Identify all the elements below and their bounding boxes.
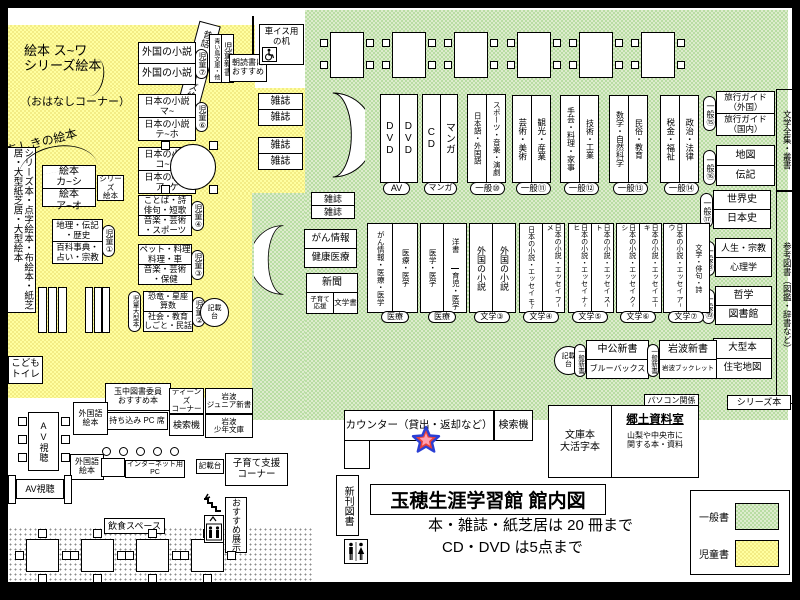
newspaper-sub-row: 子育て応援文学書: [307, 292, 357, 313]
label-text: 日本の小説・エッセイ モ~: [527, 226, 535, 309]
label-text: ・保健: [152, 275, 178, 285]
children-1-badge: 児童①: [102, 225, 115, 257]
label-text: 一般⑭: [669, 184, 695, 194]
label-text: 大活字本: [560, 442, 600, 453]
label-text: 日本の小説・エッセイ ス~ト: [594, 224, 610, 312]
local-materials-cell: 郷土資料室山梨や中央市に関する本・資料: [611, 406, 698, 477]
shelf-row: 日本の小説マ~: [139, 95, 195, 117]
internet-pc-desk: インターネット用PC: [125, 460, 185, 478]
box-text: ティーンズコーナー: [170, 388, 203, 413]
label-text: 文学全集・叢書: [782, 110, 792, 170]
label-text: （国内）: [728, 125, 762, 135]
shelf-cell: 洋書: [451, 224, 459, 268]
curved-shelf: [321, 90, 365, 180]
label-text: 児童大型本: [131, 295, 138, 328]
label-text: 子育て: [310, 296, 330, 303]
bookshelf: [94, 287, 102, 333]
magazine-rack: 雑誌雑誌: [311, 192, 355, 219]
shelf-cell: 育児・医学: [451, 268, 459, 313]
label-text: DVD: [384, 121, 395, 157]
shelf-column: 政治・法律: [679, 96, 698, 182]
chair: [209, 141, 218, 150]
legend-children-swatch: [735, 540, 779, 567]
curved-shelf: [254, 224, 296, 296]
children-large-books-badge: 児童大型本: [128, 291, 141, 332]
japanese-novels-essays-shelf: 日本の小説・エッセイ モ~日本の小説・エッセイ フ~メ: [519, 223, 565, 313]
literature-3-badge: 文学③: [474, 311, 510, 323]
shelf-column: 日本の小説・エッセイ エ~キ: [639, 224, 662, 312]
label-text: 芸術・美術: [517, 118, 527, 161]
wheelchair-desk: 車イス用の机: [259, 24, 304, 65]
medical-badge: 医療: [428, 311, 456, 323]
label-text: 絵本: [98, 192, 123, 200]
manga-badge: マンガ: [424, 182, 457, 195]
crafts-technology-shelf: 手芸・料理・家事技術・工業: [560, 95, 599, 183]
label-text: 絵本: [79, 419, 103, 428]
lending-counter-leg: [344, 441, 370, 469]
literature-books-cell: 文学書: [333, 293, 357, 313]
label-text: しごと・民話: [144, 322, 192, 331]
local-materials-title: 郷土資料室: [612, 414, 698, 427]
chair: [382, 39, 390, 47]
page-title: 玉穂生涯学習館 館内図: [370, 484, 606, 515]
bookshelf: [102, 287, 110, 333]
label-text: の机: [260, 37, 303, 47]
chair: [428, 39, 436, 47]
label-text: 文学⑤: [578, 313, 601, 322]
chair: [125, 551, 134, 560]
magazine-rack: 雑誌雑誌: [258, 137, 303, 170]
chair: [569, 61, 577, 69]
label-text: 医療: [387, 313, 403, 322]
reading-table: [330, 32, 364, 78]
box-text: 記載台: [199, 462, 222, 470]
label-text: 健康医療: [311, 253, 349, 264]
shelf-column: 日本の小説・エッセイ ナ~ヒ: [569, 224, 591, 312]
life-religion-psychology-shelf: 人生・宗教心理学: [715, 238, 772, 277]
label-text: 子育て支援: [233, 459, 281, 470]
box-text: シリーズ絵本: [98, 175, 123, 200]
shelf-row: 人生・宗教: [716, 239, 771, 257]
chair: [148, 529, 157, 538]
shelf-column: 日本の小説・エッセイ フ~メ: [542, 224, 565, 312]
label-text: AV視聴: [38, 421, 48, 463]
box-text: 岩波少年文庫: [214, 418, 244, 435]
general-12-badge: 一般⑫: [564, 182, 599, 195]
label-text: 記載: [208, 305, 222, 313]
medical-western-childcare-shelf: 医学・医学洋書育児・医学: [420, 223, 467, 313]
series-books-badge: シリーズ本: [727, 395, 791, 410]
label-text: おすすめ展示: [231, 498, 241, 552]
label-text: カ~シ: [56, 177, 82, 188]
shelf-row: 岩波新書: [660, 341, 716, 359]
label-text: 雑誌: [271, 156, 291, 167]
children-6-badge: 児童⑥: [195, 102, 208, 132]
literature-5-badge: 文学⑤: [572, 311, 608, 323]
shelf-row: 外国の小説: [139, 43, 195, 63]
label-text: 岩波ブックレット: [662, 365, 714, 372]
label-text: 一般新書: [649, 348, 656, 374]
medical-cancer-info-shelf: がん情報・医療・医学医療・医学: [367, 223, 418, 313]
label-text: 文学④: [529, 313, 552, 322]
japanese-novels-poetry-shelf: 日本の小説・エッセイ ア~ウ文学・俳句・詩: [663, 223, 710, 313]
shelf-column: 医療・医学: [392, 224, 417, 312]
label-text: 文学⑦: [674, 313, 697, 322]
stairs-icon: [199, 491, 225, 516]
shelf-row: 旅行ガイド（国内）: [717, 113, 774, 135]
shelf-row: 日本史: [714, 209, 770, 228]
shelf-row: 地図: [717, 146, 774, 165]
box-text: こどもトイレ: [11, 359, 40, 380]
chair: [507, 39, 515, 47]
bookshelf: [58, 287, 67, 333]
children-4-badge: 児童④: [191, 201, 204, 231]
shelf-row: 中公新書: [587, 341, 648, 359]
label-text: 俳句・短歌: [144, 206, 187, 216]
childcare-support-corner: 子育て支援コーナー: [225, 453, 288, 486]
box-text: 玉中図書委員おすすめ本: [114, 388, 162, 406]
label-text: 心理学: [730, 262, 757, 272]
chair: [38, 529, 47, 538]
chair: [320, 39, 328, 47]
label-text: 新刊図書: [342, 486, 353, 526]
label-text: 日本の小説・エッセイ ナ~ヒ: [572, 224, 588, 312]
shelf-column: 参考図書（図鑑・辞書など）: [777, 192, 796, 403]
shelf-column: DVD: [399, 95, 418, 182]
label-text: 児童③: [193, 253, 202, 278]
general-11-badge: 一般⑪: [516, 182, 551, 195]
chair: [61, 453, 70, 462]
japanese-novels-essays-shelf: 日本の小説・エッセイ ナ~ヒ日本の小説・エッセイ ス~ト: [568, 223, 614, 313]
shelf-column: 日本語・外国語: [468, 95, 486, 182]
chair: [61, 417, 70, 426]
av-badge: AV: [383, 182, 410, 195]
box-text: 持ち込み PC 席: [109, 417, 165, 426]
box-text: 子育て支援コーナー: [233, 459, 281, 480]
label-text: シリーズ本: [737, 397, 782, 407]
label-text: 一般⑩: [475, 184, 500, 194]
label-text: 税金・福祉: [665, 118, 675, 161]
legend-general-label: 一般書: [699, 509, 729, 524]
cancer-info-health-shelf: がん情報健康医療: [304, 229, 357, 268]
av-viewing-booth: AV視聴: [16, 479, 64, 499]
label-text: 日本の小説: [144, 119, 189, 129]
chair: [70, 551, 79, 560]
label-text: 算数: [160, 302, 176, 311]
label-text: トイレ: [11, 370, 40, 381]
art-tourism-shelf: 芸術・美術観光・産業: [512, 95, 551, 183]
iwanami-junior-paperbacks-shelf: 岩波ジュニア新書: [205, 388, 253, 414]
label-text: 占い・宗教: [56, 253, 99, 263]
label-text: 外国の小説: [499, 246, 509, 291]
foreign-language-picture-books-shelf: 外国語絵本: [70, 454, 104, 480]
general-14-badge: 一般⑭: [664, 182, 699, 195]
language-poetry-shelf: ことば・詩俳句・短歌音楽・芸術・スポーツ: [138, 195, 192, 236]
label-text: 文庫本: [565, 430, 595, 441]
shelf-row: 伝記: [717, 165, 774, 185]
label-text: AV: [391, 183, 402, 193]
label-text: 日本の小説: [144, 96, 189, 106]
label-text: 図書館: [729, 309, 759, 320]
reading-table: [454, 32, 488, 78]
label-text: 日本の小説・エッセイ エ~キ: [642, 224, 658, 312]
box-text: AV視聴: [25, 484, 54, 494]
bookshelf: [85, 287, 93, 333]
children-3-badge: 児童③: [191, 250, 204, 280]
chair: [615, 39, 623, 47]
teens-corner: ティーンズコーナー: [169, 388, 204, 414]
large-books-housing-maps-shelf: 大型本住宅地図: [713, 338, 772, 379]
children-7-badge: 児童⑦: [195, 49, 208, 79]
restroom-icon: [344, 539, 368, 564]
label-text: AV視聴: [25, 484, 54, 494]
shelf-column: 日本の小説・エッセイ ス~ト: [591, 224, 614, 312]
shelf-column: 数学・自然科学: [610, 96, 628, 182]
chair: [180, 551, 189, 560]
label-text: 一般⑪: [521, 184, 547, 194]
shelf-row: 雑誌: [259, 109, 302, 125]
label-text: 日本の小説・エッセイ ア~ウ: [667, 224, 683, 312]
label-text: 児童⑥: [197, 105, 206, 130]
star-marker-icon: [411, 425, 441, 455]
chair: [444, 61, 452, 69]
label-text: 検索機: [499, 420, 529, 431]
label-text: 児童⑦: [197, 52, 206, 77]
label-text: 文学・俳句・詩: [694, 244, 702, 293]
shelf-row: 岩波ブックレット: [660, 359, 716, 378]
shelf-column: 医学・医学: [421, 224, 443, 312]
magazine-rack: 雑誌雑誌: [258, 93, 303, 126]
general-15-badge: 一般⑮: [703, 96, 716, 131]
label-text: （外国）: [728, 103, 762, 113]
shelf-row: 雑誌: [312, 205, 354, 218]
shelf-row: 社会・教育しごと・民話: [144, 311, 192, 331]
bookshelf: [48, 287, 57, 333]
label-text: 雑誌: [324, 207, 342, 217]
label-text: 技術・工業: [585, 119, 594, 159]
shelf-row: 百科事典・占い・宗教: [53, 241, 102, 263]
shelf-row: 心理学: [716, 257, 771, 276]
label-text: 文学書: [334, 299, 357, 307]
shelf-column: スポーツ・音楽・演劇: [486, 95, 505, 182]
label-text: 応援: [314, 303, 327, 310]
legend-general-swatch: [735, 503, 779, 530]
shelf-row: 雑誌: [259, 153, 302, 169]
label-text: 文学③: [480, 313, 503, 322]
world-japan-history-shelf: 世界史日本史: [713, 190, 771, 229]
label-text: 文学⑥: [626, 313, 649, 322]
label-text: 一般⑰: [702, 199, 711, 223]
kids-toilet-label: こどもトイレ: [8, 356, 43, 384]
label-text: DVD: [403, 121, 414, 157]
label-text: 一般⑬: [618, 184, 644, 194]
japanese-novels-essays-shelf: 日本の小説・エッセイ ク~シ日本の小説・エッセイ エ~キ: [616, 223, 662, 313]
label-text: 日本史: [727, 213, 757, 224]
label-text: がん情報・医療・医学: [376, 231, 384, 306]
shelf-row: 雑誌: [312, 193, 354, 205]
reading-table: [579, 32, 613, 78]
label-text: おすすめ本: [114, 397, 162, 406]
dvd-shelf: DVDDVD: [380, 94, 418, 183]
label-text: 児童④: [193, 204, 202, 229]
shelf-column: 新刊図書: [337, 476, 358, 535]
box-text: 岩波ジュニア新書: [207, 393, 251, 410]
chair: [366, 39, 374, 47]
label-text: 料理・車: [148, 255, 182, 265]
shelf-row: 旅行ガイド（外国）: [717, 92, 774, 113]
reading-table: [517, 32, 551, 78]
round-table: [170, 144, 216, 190]
shelf-column: 日本の小説・エッセイ モ~: [520, 224, 542, 312]
label-text: 哲学: [734, 290, 754, 301]
shelf-column: がん情報・医療・医学: [368, 224, 392, 312]
label-text: 洋書: [451, 238, 459, 253]
shelf-row: 雑誌: [259, 138, 302, 153]
label-text: テ~ホ: [155, 129, 178, 139]
shelf-row: 音楽・芸術・スポーツ: [139, 215, 191, 235]
chair: [490, 39, 498, 47]
stool: [102, 447, 111, 456]
shelf-row: 恐竜・星座算数: [144, 292, 192, 311]
label-text: CD: [426, 127, 437, 151]
chair: [320, 61, 328, 69]
shelf-row: 外国の小説: [139, 63, 195, 84]
chair: [631, 61, 639, 69]
series-picture-books-shelf: シリーズ絵本: [97, 175, 124, 201]
shelf-column: 観光・産業: [531, 96, 550, 182]
childcare-support-cell: 子育て応援: [307, 293, 333, 313]
chair: [18, 435, 27, 444]
label-text: 台: [565, 361, 572, 369]
label-text: スポーツ・音楽・演劇: [492, 101, 500, 176]
shelf-column: 民俗・教育: [628, 96, 647, 182]
shelf-column: 外国の小説: [470, 224, 492, 312]
reading-table: [392, 32, 426, 78]
label-text: 日本語・外国語: [473, 112, 481, 165]
label-text: 少年文庫: [214, 426, 244, 434]
legend-children-label: 児童書: [699, 546, 729, 561]
shelf-row: 雑誌: [259, 94, 302, 109]
chair: [227, 551, 236, 560]
chair: [209, 185, 218, 194]
chuko-paperbacks-shelf: 中公新書ブルーバックス: [586, 340, 649, 379]
shelf-row: ことば・詩俳句・短歌: [139, 196, 191, 215]
label-text: 雑誌: [271, 140, 291, 151]
label-text: ・歴史: [65, 231, 91, 241]
label-text: コーナー: [170, 405, 203, 413]
philosophy-library-shelf: 哲学図書館: [715, 286, 772, 325]
school-library-recommended-shelf: 玉中図書委員おすすめ本: [105, 383, 171, 411]
shelf-row: 日本の小説テ~ホ: [139, 117, 195, 140]
box-text: 検索機: [173, 420, 200, 430]
shelf-row: ペット・料理料理・車: [139, 245, 191, 264]
travel-guide-shelf: 旅行ガイド（外国）旅行ガイド（国内）: [716, 91, 775, 136]
box-text: 検索機: [499, 420, 529, 431]
shelf-row: がん情報: [305, 230, 356, 248]
box-text: 外国語絵本: [79, 410, 103, 428]
chair: [428, 61, 436, 69]
label-text: 数学・自然科学: [615, 111, 624, 167]
shelf-column: おすすめ展示: [226, 498, 246, 552]
bookshelf: [38, 287, 47, 333]
shelf-column: AV視聴: [29, 413, 58, 470]
chair: [18, 453, 27, 462]
iwanami-juvenile-paperbacks-shelf: 岩波少年文庫: [205, 414, 253, 438]
label-text: ティーンズ: [170, 388, 203, 405]
label-text: 外国の小説: [142, 47, 192, 58]
shelf-column: DVD: [381, 95, 399, 182]
math-science-folklore-shelf: 数学・自然科学民俗・教育: [609, 95, 648, 183]
label-text: 伝記: [736, 170, 756, 181]
chair: [203, 574, 212, 583]
label-text: 育児・医学: [451, 272, 459, 310]
shelf-row: 地理・伝記・歴史: [53, 220, 102, 241]
stool: [136, 447, 145, 456]
pets-cooking-shelf: ペット・料理料理・車音楽・芸術・保健: [138, 244, 192, 285]
shelf-column: 文学全集・叢書: [777, 90, 796, 190]
label-text: 記載台: [199, 462, 222, 470]
label-text: 政治・法律: [684, 118, 694, 161]
lending-note-books: 本・雑誌・紙芝居は 20 冊まで: [428, 517, 668, 536]
label-text: 外国の小説: [142, 68, 192, 79]
foreign-language-picture-books-shelf: 外国語絵本: [73, 402, 108, 435]
dining-table: [136, 539, 169, 572]
box-text: インターネット用PC: [126, 461, 184, 477]
shelf-row: 音楽・芸術・保健: [139, 264, 191, 284]
recommended-display-shelf: おすすめ展示: [225, 497, 247, 553]
shelf-row: 住宅地図: [714, 358, 771, 378]
paperback-large-print-cell: 文庫本大活字本: [549, 406, 611, 477]
shelf-column: 日本の小説・エッセイ ア~ウ: [664, 224, 686, 312]
chair: [15, 551, 24, 560]
label-text: マンガ: [429, 184, 453, 193]
label-text: 絵本: [59, 189, 79, 200]
literature-6-badge: 文学⑥: [620, 311, 656, 323]
shelf-column: CD: [423, 95, 440, 182]
label-text: 医療: [434, 313, 450, 322]
byo-pc-seat-label: 持ち込み PC 席: [106, 412, 168, 430]
chair: [490, 61, 498, 69]
label-text: 雑誌: [271, 96, 291, 107]
stool: [170, 447, 179, 456]
label-text: 検索機: [173, 420, 200, 430]
label-text: コーナー: [233, 470, 281, 481]
label-text: 世界史: [727, 194, 757, 205]
label-text: ・スポーツ: [144, 226, 186, 236]
chair: [444, 39, 452, 47]
maps-biography-shelf: 地図伝記: [716, 145, 775, 186]
label-text: 一般⑯: [705, 156, 714, 180]
chair: [93, 574, 102, 583]
label-text: 雑誌: [271, 112, 291, 123]
tax-politics-shelf: 税金・福祉政治・法律: [660, 95, 699, 183]
label-text: 手芸・料理・家事: [566, 107, 575, 171]
chair: [93, 529, 102, 538]
chair: [148, 574, 157, 583]
shelf-column: 洋書育児・医学: [443, 224, 466, 312]
label-text: 岩波新書: [668, 344, 708, 355]
language-sports-music-shelf: 日本語・外国語スポーツ・音楽・演劇: [467, 94, 506, 183]
new-arrivals-shelf: 新刊図書: [336, 475, 359, 536]
bookshelf: [64, 475, 72, 504]
shelf-row: 哲学: [716, 287, 771, 305]
literature-7-badge: 文学⑦: [668, 311, 704, 323]
shelf-column: 技術・工業: [579, 96, 598, 182]
literature-collection-shelf: 文学全集・叢書: [776, 89, 797, 191]
shelf-row: 絵本ア~オ: [43, 188, 95, 211]
label-text: がん情報: [311, 234, 349, 245]
legend: 一般書 児童書: [690, 490, 790, 575]
